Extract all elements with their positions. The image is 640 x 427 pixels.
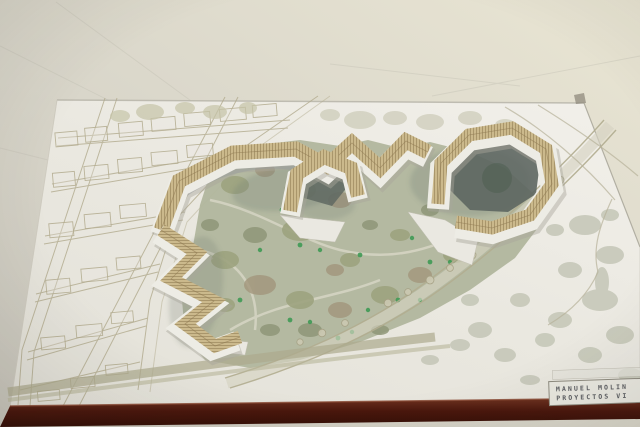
vignette-overlay (0, 0, 640, 427)
photo-architectural-model: MANUEL MOLIN PROYECTOS VI (0, 0, 640, 427)
scene-svg: MANUEL MOLIN PROYECTOS VI (0, 0, 640, 427)
